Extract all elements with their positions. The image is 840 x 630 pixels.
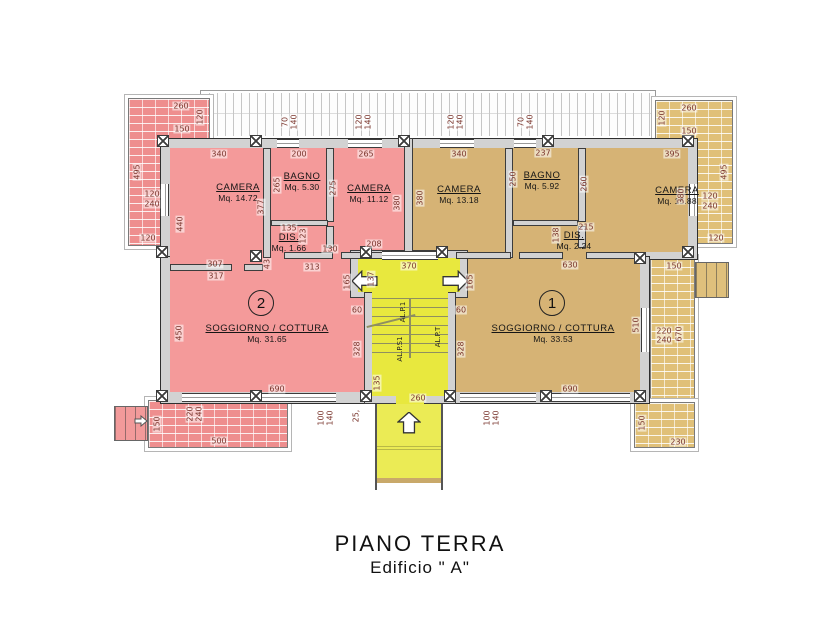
dim-label: 140 [290, 113, 299, 130]
dim-label: 230 [669, 438, 686, 447]
room-label-a2-camera2: CAMERA Mq. 11.12 [347, 183, 391, 205]
pillar [250, 390, 262, 402]
dim-label: 120 [707, 234, 724, 243]
a1-wall-camera1-bagno [505, 148, 513, 258]
stair-flight-right [411, 298, 448, 358]
walkway-threshold [377, 478, 441, 483]
dim-label: 150 [638, 414, 647, 431]
dim-label: 240 [655, 336, 672, 345]
dim-label: 150 [665, 262, 682, 271]
pillar [682, 246, 694, 258]
dim-label: 395 [663, 150, 680, 159]
dim-label: 250 [509, 170, 518, 187]
pillar [250, 135, 262, 147]
a1-wall-camera2-bottom [586, 252, 640, 259]
pillar [444, 390, 456, 402]
pillar [250, 250, 262, 262]
dim-label: 500 [210, 437, 227, 446]
room-label-a1-dis: DIS. Mq. 2.24 [557, 230, 592, 252]
pillar [634, 252, 646, 264]
dim-label: 240 [143, 200, 160, 209]
dim-label: 137 [367, 270, 376, 287]
dim-label: 120 [701, 192, 718, 201]
room-label-a1-bagno: BAGNO Mq. 5.92 [524, 170, 561, 192]
dim-label: 237 [534, 149, 551, 158]
dim-label: 260 [580, 175, 589, 192]
dim-label: 130 [321, 245, 338, 254]
dim-label: 275 [329, 179, 338, 196]
dim-label: 307 [206, 260, 223, 269]
dim-label: 495 [720, 163, 729, 180]
window-bottom-2 [262, 393, 336, 402]
dim-label: 265 [357, 150, 374, 159]
dim-label: 220 [655, 327, 672, 336]
dim-label: 25, [352, 409, 361, 424]
dim-label: 120 [355, 113, 364, 130]
dim-label: 380 [677, 187, 686, 204]
room-label-a1-soggiorno: SOGGIORNO / COTTURA Mq. 33.53 [492, 323, 615, 345]
door-arrow-right-icon [442, 270, 468, 292]
room-label-a2-soggiorno: SOGGIORNO / COTTURA Mq. 31.65 [206, 323, 329, 345]
apartment-2-number: 2 [248, 290, 274, 316]
pillar [634, 390, 646, 402]
dim-label: 313 [303, 263, 320, 272]
window-left [160, 184, 169, 216]
window-top-4 [514, 139, 536, 148]
canopy-hatched-area [200, 90, 656, 139]
dim-label: 215 [577, 223, 594, 232]
dim-label: 120 [658, 109, 667, 126]
dim-label: 260 [680, 104, 697, 113]
window-bottom-4 [552, 393, 630, 402]
window-landing-top [382, 251, 438, 260]
window-top-2 [348, 139, 382, 148]
dim-label: 220 [186, 405, 195, 422]
dim-label: 120 [447, 113, 456, 130]
dim-label: 150 [153, 415, 162, 432]
window-right-step [641, 308, 650, 352]
dim-label: 135 [280, 224, 297, 233]
dim-label: 690 [561, 385, 578, 394]
dim-label: 370 [400, 262, 417, 271]
external-stair-right [695, 262, 729, 298]
dim-label: 510 [632, 316, 641, 333]
window-top-1 [277, 139, 299, 148]
pillar [682, 135, 694, 147]
dim-label: 140 [456, 113, 465, 130]
dim-label: 123 [299, 227, 308, 244]
a2-wall-soggiorno-top-2 [244, 264, 263, 271]
dim-label: 380 [393, 194, 402, 211]
dim-label: 100 [483, 409, 492, 426]
stair-label-to-ground: AL.P.T [434, 327, 442, 348]
dim-label: 70 [517, 116, 526, 128]
dim-label: 340 [450, 150, 467, 159]
stair-label-to-basement: AL.P.S1 [396, 336, 404, 361]
dim-label: 208 [365, 240, 382, 249]
dim-label: 328 [353, 340, 362, 357]
dim-label: 150 [680, 127, 697, 136]
dim-label: 135 [373, 374, 382, 391]
entrance-arrow-up-icon [397, 412, 421, 434]
walkway-edge-right [441, 404, 443, 490]
dim-label: 60 [351, 306, 363, 315]
pillar [157, 135, 169, 147]
room-label-a1-camera1: CAMERA Mq. 13.18 [437, 184, 481, 206]
dim-label: 265 [273, 176, 282, 193]
floor-plan-canvas: CAMERA Mq. 14.72 BAGNO Mq. 5.30 CAMERA M… [0, 0, 840, 630]
dim-label: 260 [409, 394, 426, 403]
dim-label: 165 [343, 273, 352, 290]
dim-label: 165 [466, 273, 475, 290]
dim-label: 120 [143, 190, 160, 199]
stair-label-to-first-floor: AL.P.1 [399, 302, 407, 323]
dim-label: 150 [173, 125, 190, 134]
dim-label: 140 [492, 409, 501, 426]
dim-label: 100 [317, 409, 326, 426]
dim-label: 440 [176, 215, 185, 232]
dim-label: 43 [263, 258, 272, 270]
dim-label: 260 [172, 102, 189, 111]
dim-label: 328 [457, 340, 466, 357]
dim-label: 317 [207, 272, 224, 281]
pillar [156, 246, 168, 258]
apartment-1-number: 1 [539, 290, 565, 316]
dim-label: 377 [257, 198, 266, 215]
dim-label: 340 [210, 150, 227, 159]
dim-label: 120 [139, 234, 156, 243]
dim-label: 138 [552, 226, 561, 243]
pillar [542, 135, 554, 147]
apartment-1-interior-lower [456, 252, 640, 392]
dim-label: 670 [675, 325, 684, 342]
window-top-3 [440, 139, 474, 148]
a1-wall-soggiorno-top-1 [456, 252, 511, 259]
plan-title: PIANO TERRA [0, 531, 840, 557]
room-label-a2-camera1: CAMERA Mq. 14.72 [216, 182, 260, 204]
room-label-a2-bagno: BAGNO Mq. 5.30 [284, 171, 321, 193]
dim-label: 495 [133, 163, 142, 180]
dim-label: 70 [281, 116, 290, 128]
dim-label: 450 [175, 324, 184, 341]
pillar [398, 135, 410, 147]
walkway-joint-line-2 [377, 449, 441, 450]
dim-label: 690 [268, 385, 285, 394]
pillar [436, 246, 448, 258]
terrace-stair-arrow-icon [134, 415, 148, 427]
pillar [360, 390, 372, 402]
a1-wall-soggiorno-top-2 [519, 252, 563, 259]
a1-wall-bagno-dis [513, 220, 578, 226]
dim-label: 630 [561, 261, 578, 270]
dim-label: 200 [290, 150, 307, 159]
dim-label: 140 [364, 113, 373, 130]
party-wall [404, 138, 413, 258]
dim-label: 140 [326, 409, 335, 426]
dim-label: 240 [195, 405, 204, 422]
window-bottom-1 [182, 393, 254, 402]
dim-label: 380 [416, 189, 425, 206]
pillar [156, 390, 168, 402]
plan-subtitle: Edificio " A" [0, 558, 840, 578]
dim-label: 120 [196, 108, 205, 125]
dim-label: 240 [701, 202, 718, 211]
dim-label: 140 [526, 113, 535, 130]
stair-divider [409, 298, 411, 358]
dim-label: 60 [455, 306, 467, 315]
pillar [540, 390, 552, 402]
walkway-joint-line [377, 446, 441, 447]
window-bottom-3 [460, 393, 536, 402]
